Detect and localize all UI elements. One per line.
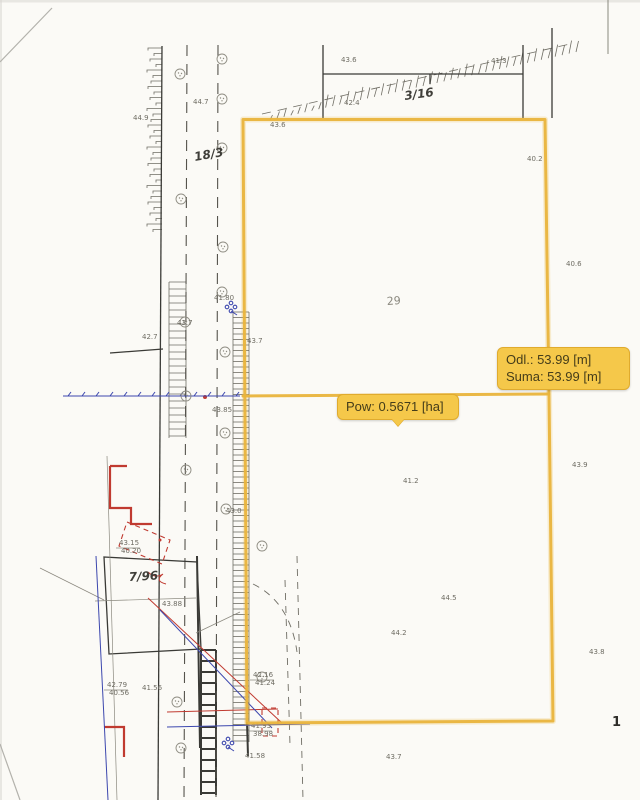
elevation-label: 43.9 (572, 461, 588, 469)
tree-circle (220, 347, 230, 357)
tree-dot (222, 248, 223, 249)
tree-circle (217, 94, 227, 104)
hatch-mark (154, 92, 162, 95)
hydrant-dot (222, 741, 226, 745)
elevation-label: 41.58 (245, 752, 265, 760)
tree-dot (178, 701, 179, 702)
road-edge-dashed (184, 45, 187, 800)
tree-dot (187, 395, 188, 396)
hatch-mark (150, 213, 162, 216)
hatch-mark (312, 106, 315, 111)
tree-dot (263, 545, 264, 546)
elevation-label: 41.56 (142, 684, 163, 692)
tree-dot (178, 72, 179, 73)
pipe-tick (138, 392, 141, 396)
tree-icon (257, 541, 267, 551)
elevation-label: 40.56 (109, 689, 130, 697)
parcel-label-29: 29 (386, 294, 401, 308)
tree-icon (181, 465, 191, 475)
scan-edge-top (0, 0, 640, 3)
elevation-label: 42.16 (253, 671, 274, 679)
path-dashed (297, 556, 303, 800)
hatch-mark (367, 87, 370, 98)
path-curve-dashed (253, 584, 297, 652)
tree-icon (175, 69, 185, 79)
hatch-mark (148, 87, 162, 90)
tree-icon (172, 697, 182, 707)
elevation-label: 40.20 (121, 547, 141, 555)
hatch-mark (147, 147, 162, 150)
tree-dot (224, 507, 225, 508)
tree-dot (224, 434, 225, 435)
map-canvas[interactable]: 44.944.743.641.342.443.640.240.642.743.7… (0, 0, 640, 800)
elevation-label: 40.2 (527, 155, 543, 163)
tree-dot (185, 397, 186, 398)
scan-scratch (0, 8, 52, 62)
hatch-mark (513, 57, 516, 66)
tree-icon (217, 54, 227, 64)
hatch-mark (148, 202, 162, 205)
boundary-stub (247, 722, 248, 756)
pipe-tick (82, 392, 85, 396)
hatch-mark (458, 68, 461, 78)
elevation-label: 43.8 (589, 648, 605, 656)
hatch-mark (319, 102, 322, 109)
pipe-tick (166, 392, 169, 396)
hatch-mark (151, 158, 162, 161)
hatch-mark (486, 60, 489, 72)
tree-icon (218, 242, 228, 252)
tree-circle (176, 194, 186, 204)
pipe-tick (96, 392, 99, 396)
tree-dot (184, 394, 185, 395)
tree-dot (185, 471, 186, 472)
hatch-mark (569, 41, 572, 54)
tree-dot (179, 197, 180, 198)
red-building-edge (110, 466, 152, 524)
tree-dot (179, 746, 180, 747)
tree-dot (223, 291, 224, 292)
fence-line (40, 568, 104, 600)
hatch-mark (465, 64, 468, 77)
elevation-label: 44.7 (193, 98, 209, 106)
tree-dot (181, 73, 182, 74)
hydrant-dot (233, 305, 237, 309)
tree-dot (223, 350, 224, 351)
hatch-mark (548, 49, 551, 58)
elevation-label: 41.24 (255, 679, 276, 687)
tree-circle (175, 69, 185, 79)
hydrant-icon (222, 737, 234, 751)
hatch-mark (147, 224, 162, 227)
hatch-mark (333, 95, 336, 106)
distance-tooltip: Odl.: 53.99 [m] Suma: 53.99 [m] (497, 347, 630, 390)
hatch-mark (156, 65, 162, 68)
elevation-label: 43.7 (386, 753, 402, 761)
tree-dot (182, 198, 183, 199)
tree-dot (223, 147, 224, 148)
hatch-mark (395, 79, 398, 92)
elevation-label: 43.7 (247, 337, 263, 345)
tree-dot (223, 431, 224, 432)
hatch-mark (150, 136, 162, 139)
red-node-dot (159, 539, 162, 542)
hatch-mark (360, 87, 363, 100)
elevation-label: 44.2 (391, 629, 407, 637)
elevation-label: 42.79 (107, 681, 127, 689)
tree-dot (175, 700, 176, 701)
hatch-mark (153, 76, 162, 79)
elevation-label: 43.85 (212, 406, 232, 414)
hatch-mark (576, 41, 579, 52)
tooltip-pointer-icon (392, 419, 404, 426)
red-cable-line (167, 709, 278, 712)
pipe-tick (194, 392, 197, 396)
tree-circle (217, 54, 227, 64)
hatch-mark (148, 125, 162, 128)
hatch-mark (148, 164, 162, 167)
hatch-mark (151, 81, 162, 84)
parcel-label-18-3: 18/3 (193, 145, 224, 164)
hatch-mark (147, 186, 162, 189)
hatch-mark (381, 83, 384, 95)
tree-dot (187, 469, 188, 470)
hatch-mark (291, 110, 294, 115)
tree-dot (223, 98, 224, 99)
elevation-label: 43.7 (177, 319, 193, 327)
pipe-tick (236, 392, 239, 396)
hatch-mark (479, 65, 482, 74)
tree-dot (223, 58, 224, 59)
tree-icon (217, 94, 227, 104)
hydrant-dot (226, 737, 230, 741)
tree-circle (218, 242, 228, 252)
tree-dot (179, 75, 180, 76)
page-number: 1 (612, 715, 621, 730)
elevation-label: 43.6 (341, 56, 357, 64)
distance-value: Odl.: 53.99 [m] (506, 351, 621, 368)
elevation-label: 43.0 (226, 507, 242, 515)
hatch-mark (151, 120, 162, 123)
tree-dot (180, 200, 181, 201)
hatch-mark (506, 56, 509, 67)
hatch-mark (562, 45, 565, 55)
tree-circle (220, 428, 230, 438)
hatch-mark (150, 59, 162, 62)
area-tooltip: Pow: 0.5671 [ha] (337, 394, 459, 420)
tree-dot (221, 100, 222, 101)
hatch-mark (416, 76, 419, 88)
hatch-mark (326, 95, 329, 108)
tree-circle (172, 697, 182, 707)
tree-dot (221, 245, 222, 246)
pipe-tick (68, 392, 71, 396)
tree-dot (176, 703, 177, 704)
hatch-mark (374, 88, 377, 97)
elevation-label: 44.5 (441, 594, 457, 602)
hatch-mark (154, 131, 162, 134)
hatch-mark (153, 153, 162, 156)
tree-dot (261, 547, 262, 548)
tree-icon (220, 428, 230, 438)
elevation-label: 41.80 (214, 294, 234, 302)
tree-dot (226, 432, 227, 433)
area-value: Pow: 0.5671 [ha] (346, 398, 450, 415)
parcel-label-3-16: 3/16 (403, 85, 434, 103)
tree-dot (180, 749, 181, 750)
tree-circle (257, 541, 267, 551)
hydrant-dot (230, 741, 234, 745)
tree-circle (181, 465, 191, 475)
hatch-mark (298, 107, 301, 114)
red-building-edge (104, 727, 124, 757)
tree-dot (224, 246, 225, 247)
tree-dot (220, 57, 221, 58)
elevation-label: 44.9 (133, 114, 149, 122)
embankment-edge-dashed (262, 44, 570, 114)
pipe-tick (124, 392, 127, 396)
scan-scratch (0, 744, 20, 800)
elevation-label: 40.6 (566, 260, 582, 268)
elevation-label: 43.88 (162, 600, 182, 608)
hatch-mark (150, 175, 162, 178)
scan-edge-left (0, 0, 2, 800)
tree-icon (176, 194, 186, 204)
hatch-mark (534, 48, 537, 61)
map-viewer: 44.944.743.641.342.443.640.240.642.743.7… (0, 0, 640, 800)
hatch-mark (527, 53, 530, 63)
tree-dot (260, 544, 261, 545)
spur-line (110, 349, 163, 353)
tree-dot (220, 97, 221, 98)
pipe-tick (110, 392, 113, 396)
tree-dot (182, 747, 183, 748)
parcel-label-7-96: 7/96 (128, 568, 158, 584)
tree-dot (224, 353, 225, 354)
hatch-mark (150, 98, 162, 101)
hatch-mark (153, 114, 162, 117)
elevation-label: 42.7 (142, 333, 158, 341)
tree-icon (220, 347, 230, 357)
hatch-mark (147, 109, 162, 112)
hatch-mark (305, 103, 308, 112)
hydrant-dot (225, 305, 229, 309)
elevation-label: 41.3 (491, 57, 507, 65)
tree-dot (221, 60, 222, 61)
hatch-mark (154, 54, 162, 57)
elevation-label: 38.98 (253, 730, 273, 738)
pipe-tick (152, 392, 155, 396)
hatch-mark (555, 45, 558, 57)
hatch-mark (340, 96, 343, 105)
elevation-label: 43.15 (119, 539, 139, 547)
elevation-label: 41.2 (403, 477, 419, 485)
distance-sum-value: Suma: 53.99 [m] (506, 368, 621, 385)
tree-dot (184, 468, 185, 469)
pipe-tick (222, 392, 225, 396)
hydrant-icon (225, 301, 237, 315)
hatch-mark (151, 197, 162, 200)
hatch-mark (147, 70, 162, 73)
tree-dot (226, 351, 227, 352)
tree-dot (220, 290, 221, 291)
hatch-mark (148, 48, 162, 51)
pipe-tick (208, 392, 211, 396)
elevation-label: 42.4 (344, 99, 360, 107)
